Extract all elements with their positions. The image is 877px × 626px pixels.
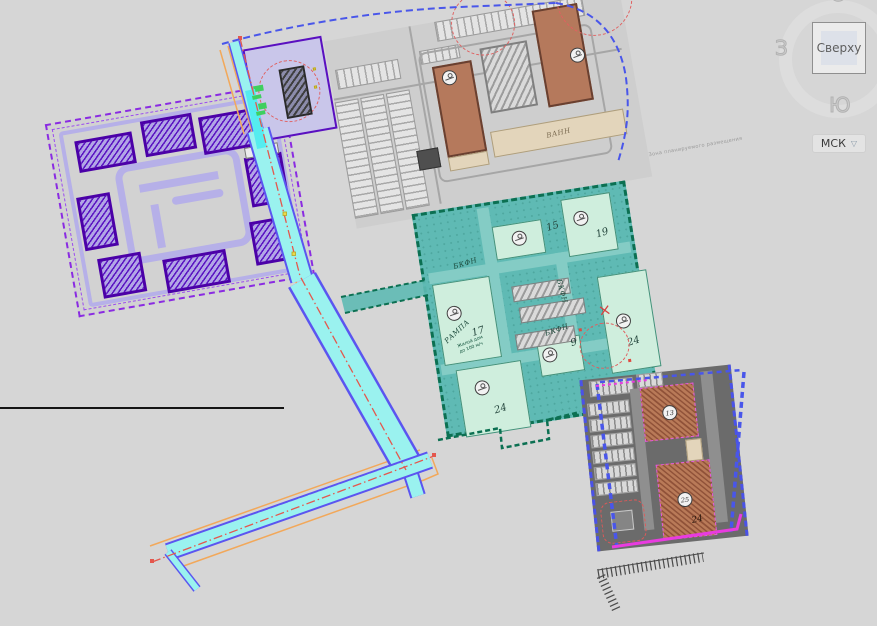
parking-row [590,431,633,448]
parking-row [589,415,632,432]
parking-row [594,463,637,480]
point-marker [579,328,582,331]
building [456,360,532,437]
viewcube-north[interactable]: С [830,0,844,6]
chevron-down-icon: ▽ [851,139,857,148]
connector [685,438,703,462]
parking-teeth [240,466,405,524]
point-marker [314,85,317,88]
strip-label: ВАНН [546,126,572,139]
view-top-button[interactable]: Сверху [812,22,866,74]
building-number: 15 [545,220,560,234]
crs-dropdown[interactable]: МСК ▽ [812,134,866,153]
red-cross-marker: × [597,299,613,320]
parking-row [587,399,630,416]
parking-row [589,377,634,398]
garage-building [416,147,441,171]
site-plan-canvas[interactable]: Рампа [0,0,877,626]
point-marker [313,67,316,70]
parking-row [595,479,638,496]
retaining-wall-ticks [598,553,704,611]
zone-kindergarten [242,36,337,142]
building [560,192,618,257]
building [249,214,302,265]
zone-dark-quarter: 13 25 24 [579,365,748,552]
point-marker [628,359,631,362]
parking-row [335,59,402,90]
crs-label: МСК [821,137,846,150]
substation [610,510,634,532]
viewcube-west[interactable]: З [775,36,788,60]
viewcube-south[interactable]: Ю [829,93,851,117]
view-top-label: Сверху [817,41,862,55]
boundary-annotation: Зона планируемого размещения [648,136,743,158]
parking-row [592,447,635,464]
building [97,252,147,299]
cad-viewer-window: Рампа [0,0,877,626]
